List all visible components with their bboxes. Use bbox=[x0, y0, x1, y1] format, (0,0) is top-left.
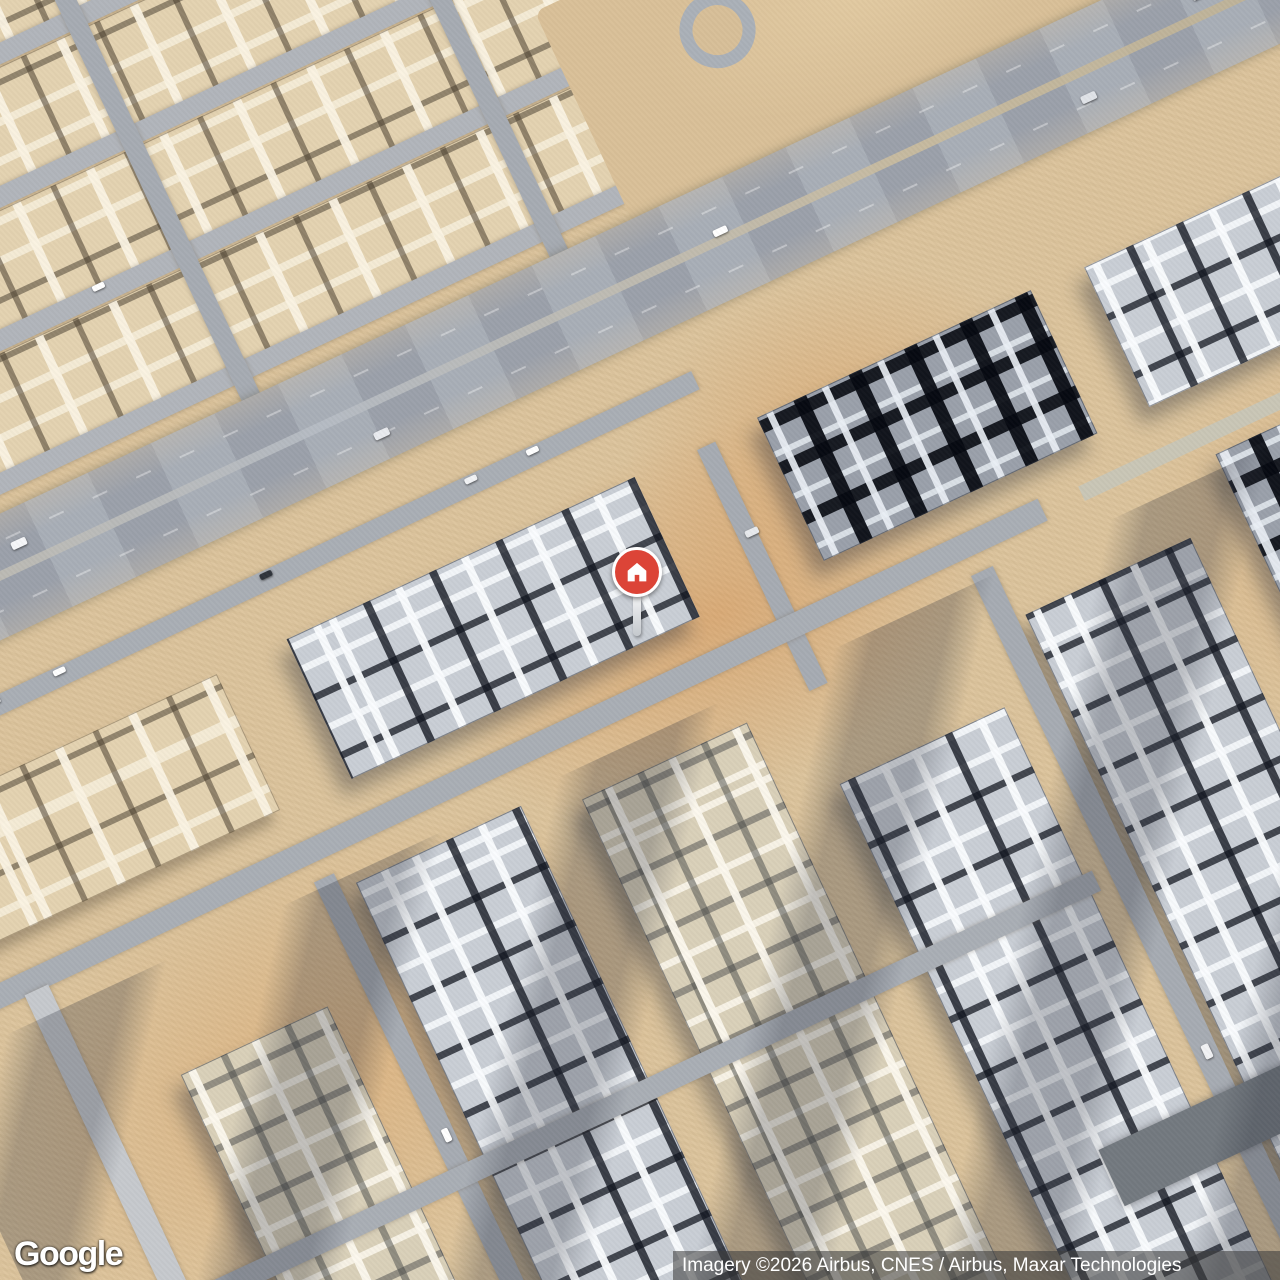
google-logo[interactable]: Google bbox=[14, 1235, 122, 1274]
marker-pin bbox=[612, 547, 662, 597]
marker-stem bbox=[633, 594, 641, 636]
satellite-imagery bbox=[0, 0, 1280, 1280]
satellite-map-canvas[interactable]: Google Imagery ©2026 Airbus, CNES / Airb… bbox=[0, 0, 1280, 1280]
imagery-attribution: Imagery ©2026 Airbus, CNES / Airbus, Max… bbox=[673, 1251, 1280, 1280]
home-icon bbox=[624, 559, 650, 585]
